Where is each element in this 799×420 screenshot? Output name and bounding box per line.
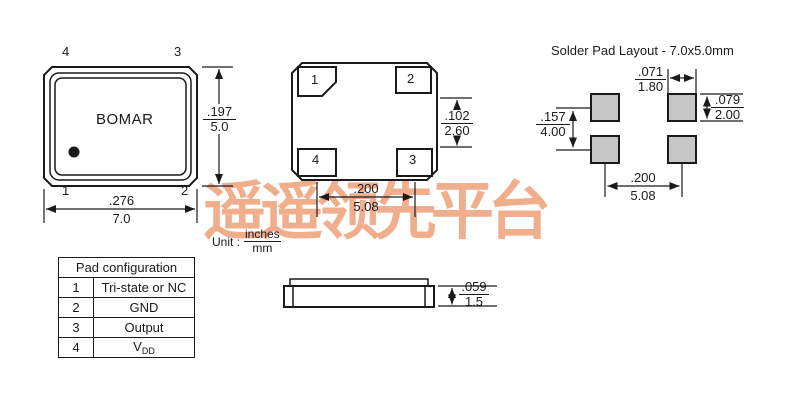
bottom-view-pad-1-label: 1 bbox=[311, 73, 318, 87]
technical-drawing-canvas: 遥遥领先平台 bbox=[0, 0, 799, 420]
dimension-mm: 7.0 bbox=[104, 212, 139, 226]
dimension-inches: .059 bbox=[459, 280, 489, 295]
table-row: 2 GND bbox=[59, 298, 195, 318]
pad-function: Output bbox=[94, 318, 195, 338]
unit-numerator: inches bbox=[244, 228, 281, 242]
solder-pad-top-left bbox=[591, 94, 619, 121]
solder-pad-vertical-pitch-dimension: .157 4.00 bbox=[536, 110, 570, 139]
pad-function: GND bbox=[94, 298, 195, 318]
side-view-height-dimension: .059 1.5 bbox=[459, 280, 489, 309]
vdd-subscript: DD bbox=[142, 346, 155, 356]
unit-denominator: mm bbox=[244, 242, 281, 255]
dimension-inches: .276 bbox=[104, 194, 139, 208]
pad-number: 1 bbox=[59, 278, 94, 298]
dimension-inches: .157 bbox=[536, 110, 570, 125]
dimension-mm: 1.5 bbox=[459, 295, 489, 309]
solder-pad-bottom-left bbox=[591, 136, 619, 163]
top-view-pin-4: 4 bbox=[62, 45, 69, 59]
pin1-marker-dot bbox=[69, 147, 80, 158]
dimension-mm: 5.08 bbox=[625, 189, 661, 203]
solder-pad-width-dimension: .071 1.80 bbox=[635, 65, 666, 94]
solder-pad-layout-pads bbox=[591, 94, 696, 163]
top-view-pin-2: 2 bbox=[181, 184, 188, 198]
dimension-mm: 5.08 bbox=[348, 200, 384, 214]
bottom-view-pad-4-label: 4 bbox=[312, 153, 319, 167]
unit-fraction: inches mm bbox=[244, 228, 281, 255]
pad-number: 2 bbox=[59, 298, 94, 318]
solder-pad-layout-title: Solder Pad Layout - 7.0x5.0mm bbox=[551, 43, 734, 58]
table-title: Pad configuration bbox=[59, 258, 195, 278]
dimension-mm: 1.80 bbox=[635, 80, 666, 94]
pad-number: 4 bbox=[59, 338, 94, 358]
pad-function: VDD bbox=[94, 338, 195, 358]
dimension-mm: 4.00 bbox=[536, 125, 570, 139]
top-view-pin-1: 1 bbox=[62, 184, 69, 198]
dimension-mm: 2.00 bbox=[711, 108, 744, 122]
solder-pad-height-dimension: .079 2.00 bbox=[711, 93, 744, 122]
top-view-pin-3: 3 bbox=[174, 45, 181, 59]
solder-pad-bottom-right bbox=[668, 136, 696, 163]
pad-function: Tri-state or NC bbox=[94, 278, 195, 298]
dimension-inches: .200 bbox=[348, 182, 384, 196]
dimension-inches: .079 bbox=[711, 93, 744, 108]
unit-prefix: Unit : bbox=[212, 235, 240, 249]
solder-pad-top-right bbox=[668, 94, 696, 121]
table-header-row: Pad configuration bbox=[59, 258, 195, 278]
dimension-mm: 5.0 bbox=[203, 120, 236, 134]
bottom-view-pad-3-label: 3 bbox=[409, 153, 416, 167]
table-row: 3 Output bbox=[59, 318, 195, 338]
bottom-view-pad-pitch-dimension: .200 5.08 bbox=[348, 182, 384, 214]
unit-label: Unit : inches mm bbox=[212, 228, 281, 255]
vdd-main: V bbox=[133, 339, 142, 354]
dimension-inches: .197 bbox=[203, 105, 236, 120]
table-row: 1 Tri-state or NC bbox=[59, 278, 195, 298]
bottom-view-pad-gap-dimension: .102 2.60 bbox=[441, 109, 473, 138]
dimension-inches: .071 bbox=[635, 65, 666, 80]
dimension-inches: .102 bbox=[441, 109, 473, 124]
bottom-view-pad-2-label: 2 bbox=[407, 72, 414, 86]
top-view-height-dimension: .197 5.0 bbox=[203, 105, 236, 134]
top-view-width-dimension: .276 7.0 bbox=[104, 194, 139, 226]
pad-number: 3 bbox=[59, 318, 94, 338]
dimension-inches: .200 bbox=[625, 171, 661, 185]
dimension-mm: 2.60 bbox=[441, 124, 473, 138]
side-view-outline bbox=[284, 279, 434, 307]
solder-pad-horizontal-pitch-dimension: .200 5.08 bbox=[625, 171, 661, 203]
pad-configuration-table: Pad configuration 1 Tri-state or NC 2 GN… bbox=[58, 257, 195, 358]
table-row: 4 VDD bbox=[59, 338, 195, 358]
brand-label: BOMAR bbox=[96, 111, 154, 128]
